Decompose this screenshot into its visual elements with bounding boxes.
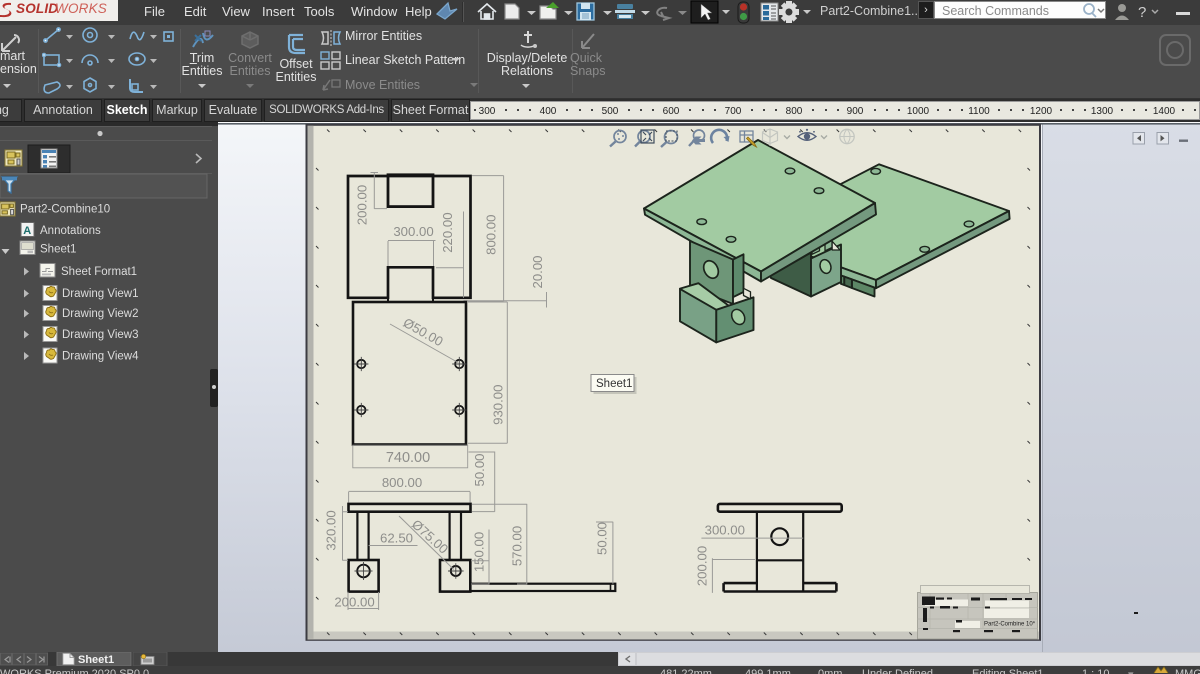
svg-text:900: 900 bbox=[847, 106, 864, 117]
svg-text:200.00: 200.00 bbox=[334, 595, 374, 610]
svg-text:800.00: 800.00 bbox=[484, 215, 499, 255]
svg-text:1100: 1100 bbox=[968, 106, 990, 117]
svg-text:740.00: 740.00 bbox=[386, 450, 430, 466]
svg-text:Drawing View3: Drawing View3 bbox=[62, 329, 139, 341]
svg-text:Annotations: Annotations bbox=[40, 225, 101, 237]
svg-text:570.00: 570.00 bbox=[510, 526, 525, 566]
svg-text:320.00: 320.00 bbox=[324, 510, 339, 550]
svg-text:930.00: 930.00 bbox=[491, 385, 506, 425]
svg-text:?: ? bbox=[1138, 4, 1146, 21]
svg-text:600: 600 bbox=[663, 106, 680, 117]
svg-text:20.00: 20.00 bbox=[530, 255, 545, 288]
svg-text:50.00: 50.00 bbox=[595, 522, 610, 555]
svg-text:200.00: 200.00 bbox=[695, 546, 710, 586]
svg-text:1300: 1300 bbox=[1091, 106, 1114, 117]
svg-text:300.00: 300.00 bbox=[393, 224, 433, 239]
svg-text:Sheet1: Sheet1 bbox=[596, 378, 632, 390]
svg-text:300.00: 300.00 bbox=[705, 523, 745, 538]
svg-text:1400: 1400 bbox=[1153, 106, 1176, 117]
svg-text:Drawing View1: Drawing View1 bbox=[62, 288, 139, 300]
svg-text:50.00: 50.00 bbox=[472, 453, 487, 486]
svg-text:Drawing View4: Drawing View4 bbox=[62, 351, 139, 363]
svg-text:Sheet1: Sheet1 bbox=[78, 654, 114, 666]
svg-text:800: 800 bbox=[786, 106, 803, 117]
svg-text:1200: 1200 bbox=[1030, 106, 1053, 117]
svg-text:400: 400 bbox=[540, 106, 557, 117]
svg-text:700: 700 bbox=[725, 106, 742, 117]
svg-text:800.00: 800.00 bbox=[382, 475, 422, 490]
svg-text:300: 300 bbox=[479, 106, 496, 117]
svg-text:SOLID: SOLID bbox=[16, 1, 58, 16]
svg-text:500: 500 bbox=[602, 106, 619, 117]
svg-text:Drawing View2: Drawing View2 bbox=[62, 308, 139, 320]
svg-text:Sheet Format1: Sheet Format1 bbox=[61, 266, 137, 278]
svg-text:200.00: 200.00 bbox=[355, 185, 370, 225]
svg-text:1000: 1000 bbox=[907, 106, 930, 117]
svg-text:150.00: 150.00 bbox=[472, 532, 487, 572]
svg-text:Part2-Combine10: Part2-Combine10 bbox=[20, 204, 110, 216]
svg-text:A: A bbox=[23, 225, 31, 237]
svg-text:Sheet1: Sheet1 bbox=[40, 244, 76, 256]
svg-text:62.50: 62.50 bbox=[380, 531, 413, 546]
svg-text:220.00: 220.00 bbox=[440, 212, 455, 252]
svg-text:Part2-Combine 10*: Part2-Combine 10* bbox=[984, 622, 1036, 628]
svg-text:WORKS: WORKS bbox=[55, 1, 107, 16]
